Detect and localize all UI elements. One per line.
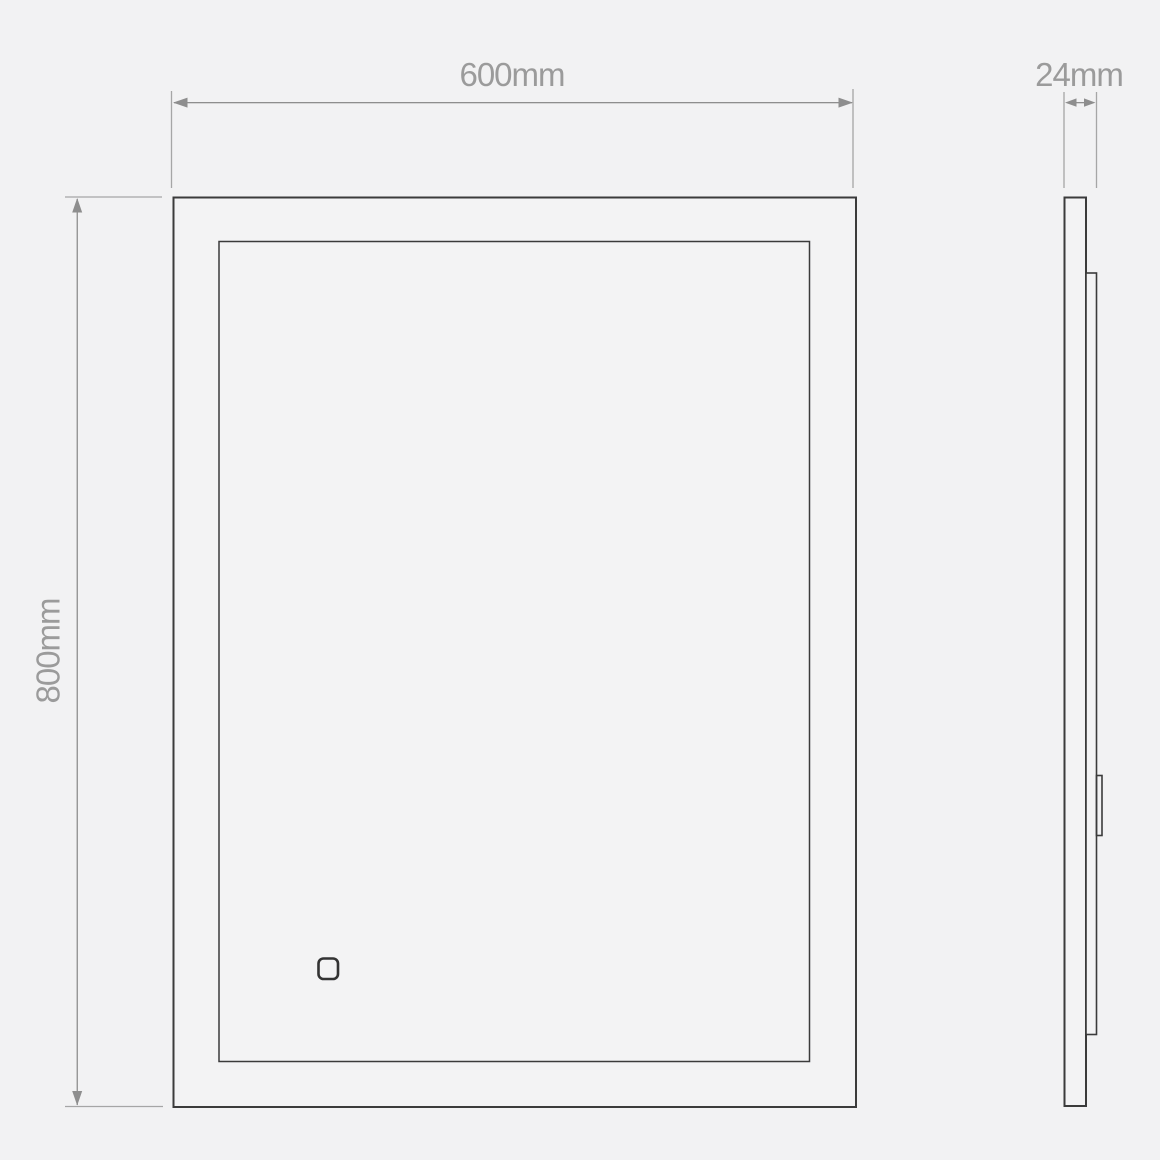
svg-text:800mm: 800mm [30, 598, 67, 703]
svg-text:600mm: 600mm [459, 56, 564, 93]
svg-text:24mm: 24mm [1035, 56, 1123, 93]
